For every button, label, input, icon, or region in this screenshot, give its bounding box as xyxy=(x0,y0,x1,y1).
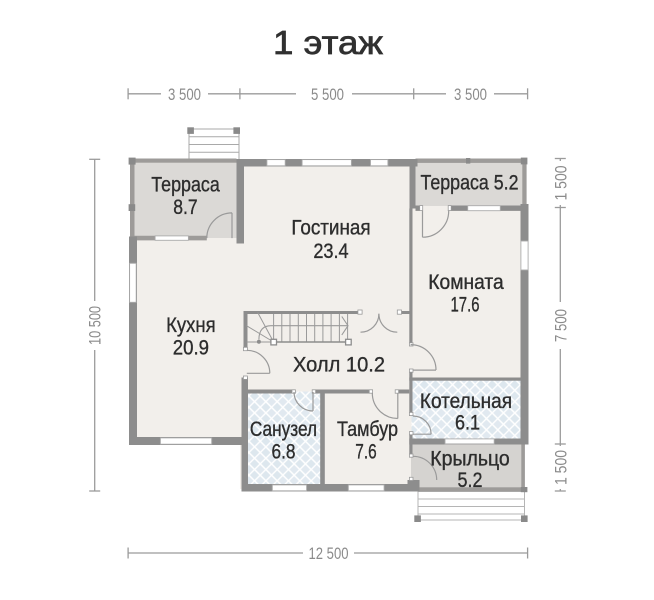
svg-text:Крыльцо: Крыльцо xyxy=(430,448,510,471)
svg-text:10 500: 10 500 xyxy=(86,306,105,345)
svg-text:23.4: 23.4 xyxy=(313,240,349,263)
svg-text:Тамбур: Тамбур xyxy=(337,418,398,441)
svg-text:7.6: 7.6 xyxy=(355,441,376,464)
svg-text:7 500: 7 500 xyxy=(551,309,570,342)
svg-text:Холл 10.2: Холл 10.2 xyxy=(293,354,385,377)
svg-text:1 500: 1 500 xyxy=(551,450,570,485)
svg-text:1 этаж: 1 этаж xyxy=(273,24,383,61)
svg-text:Комната: Комната xyxy=(428,271,504,294)
svg-text:5.2: 5.2 xyxy=(458,469,483,492)
svg-text:12 500: 12 500 xyxy=(309,544,349,563)
svg-text:Кухня: Кухня xyxy=(166,314,216,337)
svg-text:6.1: 6.1 xyxy=(455,412,480,435)
svg-text:20.9: 20.9 xyxy=(173,337,209,360)
svg-text:17.6: 17.6 xyxy=(451,294,480,317)
svg-text:Терраса: Терраса xyxy=(151,174,220,197)
svg-text:5 500: 5 500 xyxy=(311,85,344,104)
svg-text:Котельная: Котельная xyxy=(420,390,512,413)
svg-text:1 500: 1 500 xyxy=(551,166,570,201)
svg-text:3 500: 3 500 xyxy=(168,85,201,104)
svg-text:6.8: 6.8 xyxy=(272,441,296,464)
svg-text:Гостиная: Гостиная xyxy=(291,217,370,240)
svg-text:3 500: 3 500 xyxy=(454,85,487,104)
svg-text:Терраса 5.2: Терраса 5.2 xyxy=(421,172,519,195)
svg-text:8.7: 8.7 xyxy=(173,196,197,219)
svg-text:Санузел: Санузел xyxy=(250,418,317,441)
